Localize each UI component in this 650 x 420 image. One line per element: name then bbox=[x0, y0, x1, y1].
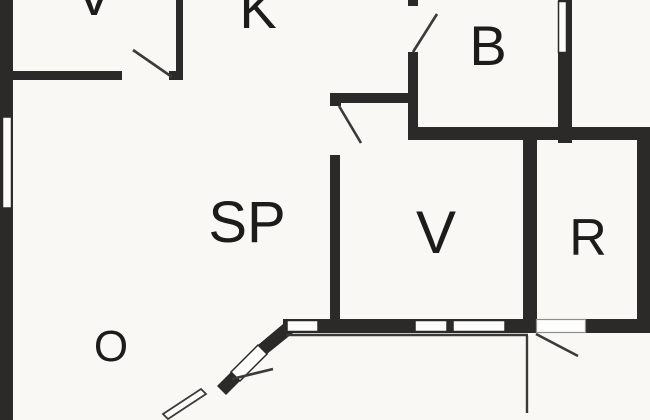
room-label-sp: SP bbox=[208, 190, 285, 255]
south-window-v-left bbox=[415, 321, 447, 332]
room-label-v-top: V bbox=[75, 0, 113, 27]
sp-v-wall-jamb bbox=[330, 93, 341, 106]
room-label-k: K bbox=[239, 0, 276, 40]
room-label-o: O bbox=[94, 322, 128, 371]
b-right-wall-window bbox=[559, 2, 567, 53]
v-mid-left-wall bbox=[330, 155, 340, 333]
room-label-r: R bbox=[569, 209, 607, 267]
v-top-bottom-wall bbox=[8, 71, 122, 80]
south-window-sp bbox=[287, 321, 318, 332]
r-right-wall bbox=[637, 127, 650, 333]
floorplan: V K B SP V R O bbox=[0, 0, 650, 420]
v-top-k-divider-wall bbox=[176, 0, 183, 73]
v-r-divider-wall bbox=[523, 140, 537, 325]
b-bottom-r-top-wall bbox=[408, 127, 650, 140]
sp-v-wall bbox=[330, 93, 410, 103]
south-window-v-right bbox=[453, 321, 505, 332]
left-wall-window bbox=[3, 117, 12, 208]
left-exterior-wall bbox=[0, 0, 13, 420]
b-door-top-jamb bbox=[408, 0, 418, 6]
floorplan-svg: V K B SP V R O bbox=[0, 0, 650, 420]
room-label-v-mid: V bbox=[416, 199, 456, 266]
south-wall-r-section bbox=[585, 319, 650, 333]
r-door-threshold bbox=[537, 320, 586, 333]
room-label-b: B bbox=[469, 14, 506, 77]
b-left-wall bbox=[408, 52, 418, 140]
